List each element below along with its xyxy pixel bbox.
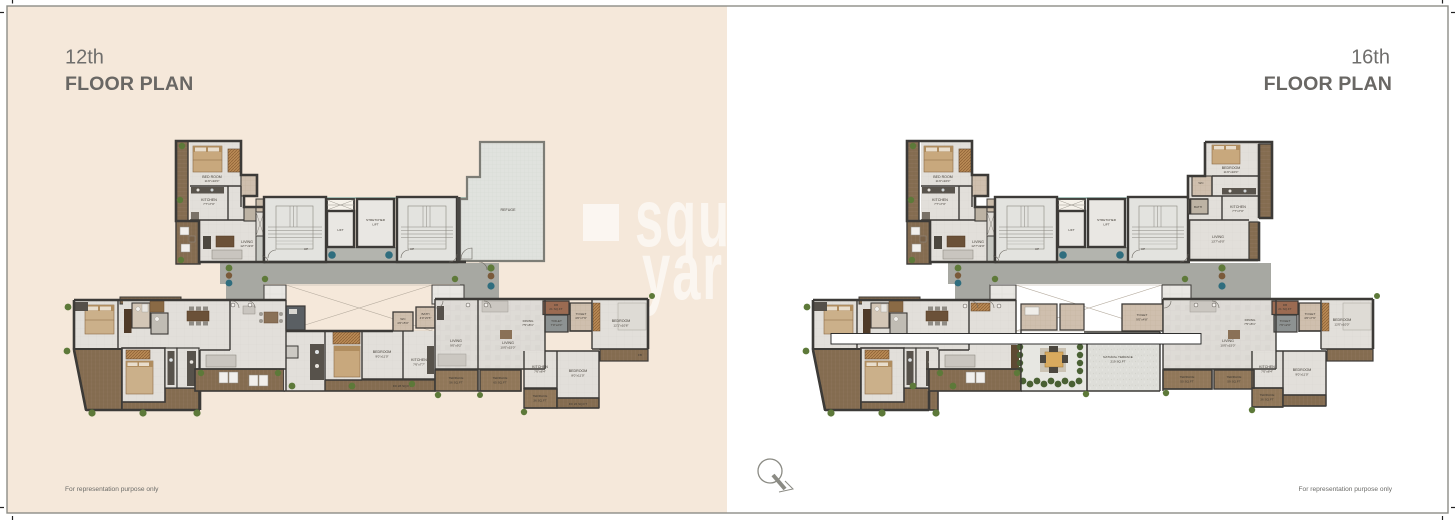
svg-text:FLOOR PLAN: FLOOR PLAN <box>1264 73 1392 95</box>
svg-text:TERRACE: TERRACE <box>1180 375 1195 379</box>
svg-text:56 SQ.FT: 56 SQ.FT <box>449 381 463 385</box>
svg-text:10'0"x15'0": 10'0"x15'0" <box>500 346 515 350</box>
svg-text:7'7"x7'0": 7'7"x7'0" <box>934 202 946 206</box>
svg-text:4'0"x7'6": 4'0"x7'6" <box>1304 316 1316 320</box>
svg-text:FD 26 SQ.FT: FD 26 SQ.FT <box>569 402 588 406</box>
svg-text:36 SQ.FT: 36 SQ.FT <box>533 399 547 403</box>
svg-text:4'0"x7'6": 4'0"x7'6" <box>575 316 587 320</box>
svg-text:BATH: BATH <box>1194 205 1202 209</box>
svg-text:BEDROOM: BEDROOM <box>1293 368 1312 372</box>
svg-text:7'0"x8'4": 7'0"x8'4" <box>1261 370 1273 374</box>
svg-text:7'7"x7'0": 7'7"x7'0" <box>1232 209 1244 213</box>
svg-text:BEDROOM: BEDROOM <box>1333 318 1352 322</box>
svg-text:For representation purpose onl: For representation purpose only <box>65 486 159 493</box>
svg-text:12'0"x10'0": 12'0"x10'0" <box>1334 323 1349 327</box>
svg-text:11'0"x10'0": 11'0"x10'0" <box>1223 170 1238 174</box>
svg-text:STRETCHER: STRETCHER <box>1097 218 1117 222</box>
svg-text:12'7"x9'0": 12'7"x9'0" <box>971 244 985 248</box>
svg-text:7'5"x8'1": 7'5"x8'1" <box>522 323 534 327</box>
svg-text:LIFT: LIFT <box>1103 223 1109 227</box>
svg-text:12'1"x10'8": 12'1"x10'8" <box>613 324 628 328</box>
svg-text:9'0"x9'2": 9'0"x9'2" <box>450 344 462 348</box>
svg-text:8'0"x11'0": 8'0"x11'0" <box>571 374 584 378</box>
svg-text:50 SQ.FT: 50 SQ.FT <box>1180 380 1194 384</box>
svg-text:9'0"x11'0": 9'0"x11'0" <box>375 355 388 359</box>
svg-text:7'0"x2'0": 7'0"x2'0" <box>1279 323 1291 327</box>
svg-text:KITCHEN: KITCHEN <box>411 358 427 362</box>
svg-text:13'7"x9'0": 13'7"x9'0" <box>1211 240 1225 244</box>
svg-text:36 SQ.FT: 36 SQ.FT <box>1260 398 1274 402</box>
svg-text:7'0"x2'0": 7'0"x2'0" <box>551 323 563 327</box>
svg-text:TERRACE: TERRACE <box>493 376 508 380</box>
svg-text:59 SQ.FT: 59 SQ.FT <box>1227 380 1241 384</box>
svg-text:21 SQ.FT: 21 SQ.FT <box>549 307 563 311</box>
svg-text:FLOOR PLAN: FLOOR PLAN <box>65 73 193 95</box>
svg-text:BEDROOM: BEDROOM <box>373 350 392 354</box>
svg-text:FD 28 SQ.FT: FD 28 SQ.FT <box>393 384 412 388</box>
svg-text:BEDROOM: BEDROOM <box>569 369 588 373</box>
svg-text:LIFT: LIFT <box>1068 228 1074 232</box>
svg-text:UP: UP <box>1141 247 1145 251</box>
svg-text:LIVING: LIVING <box>450 339 462 343</box>
svg-text:10'0"x15'0": 10'0"x15'0" <box>1220 344 1235 348</box>
svg-text:TERRACE: TERRACE <box>1260 393 1275 397</box>
svg-text:9'0"x11'0": 9'0"x11'0" <box>1295 373 1308 377</box>
svg-text:219 SQ.FT: 219 SQ.FT <box>1110 360 1125 364</box>
svg-text:7'6"x7'7": 7'6"x7'7" <box>413 363 425 367</box>
svg-text:TERRACE: TERRACE <box>1227 375 1242 379</box>
svg-text:16th: 16th <box>1351 47 1390 69</box>
svg-text:65 SQ.FT: 65 SQ.FT <box>493 381 507 385</box>
svg-text:UP: UP <box>410 247 414 251</box>
svg-text:TOILET: TOILET <box>1137 313 1148 317</box>
svg-text:12th: 12th <box>65 47 104 69</box>
svg-text:21 SQ.FT: 21 SQ.FT <box>1278 307 1292 311</box>
svg-text:BEDROOM: BEDROOM <box>612 319 631 323</box>
svg-text:LIFT: LIFT <box>337 228 343 232</box>
svg-text:12'7"x9'0": 12'7"x9'0" <box>240 244 254 248</box>
svg-text:NATURAL TERRACE: NATURAL TERRACE <box>1103 355 1133 359</box>
svg-text:11'0"x10'0": 11'0"x10'0" <box>935 179 950 183</box>
svg-text:LIFT: LIFT <box>372 223 378 227</box>
svg-text:7'5"x8'1": 7'5"x8'1" <box>1244 322 1256 326</box>
svg-text:REFUGE: REFUGE <box>501 208 517 212</box>
svg-text:TERRACE: TERRACE <box>533 394 548 398</box>
svg-text:yar: yar <box>642 226 724 317</box>
svg-text:7'7"x7'0": 7'7"x7'0" <box>203 202 215 206</box>
svg-text:For representation purpose onl: For representation purpose only <box>1299 486 1393 493</box>
svg-text:WC: WC <box>1198 181 1204 185</box>
svg-text:STRETCHER: STRETCHER <box>366 218 386 222</box>
svg-text:UP: UP <box>1035 247 1039 251</box>
svg-text:FB: FB <box>638 353 642 357</box>
svg-text:4'0"x5'0": 4'0"x5'0" <box>397 321 409 325</box>
svg-text:LIVING: LIVING <box>502 341 514 345</box>
svg-text:11'0"x10'0": 11'0"x10'0" <box>204 179 219 183</box>
svg-text:4'0"x5'5": 4'0"x5'5" <box>420 316 432 320</box>
svg-text:LIVING: LIVING <box>1222 339 1234 343</box>
svg-text:9'0"x4'8": 9'0"x4'8" <box>1136 318 1148 322</box>
svg-text:UP: UP <box>304 247 308 251</box>
svg-text:LIVING: LIVING <box>1212 235 1224 239</box>
svg-text:TERRACE: TERRACE <box>449 376 464 380</box>
svg-text:7'6"x8'4": 7'6"x8'4" <box>534 370 546 374</box>
